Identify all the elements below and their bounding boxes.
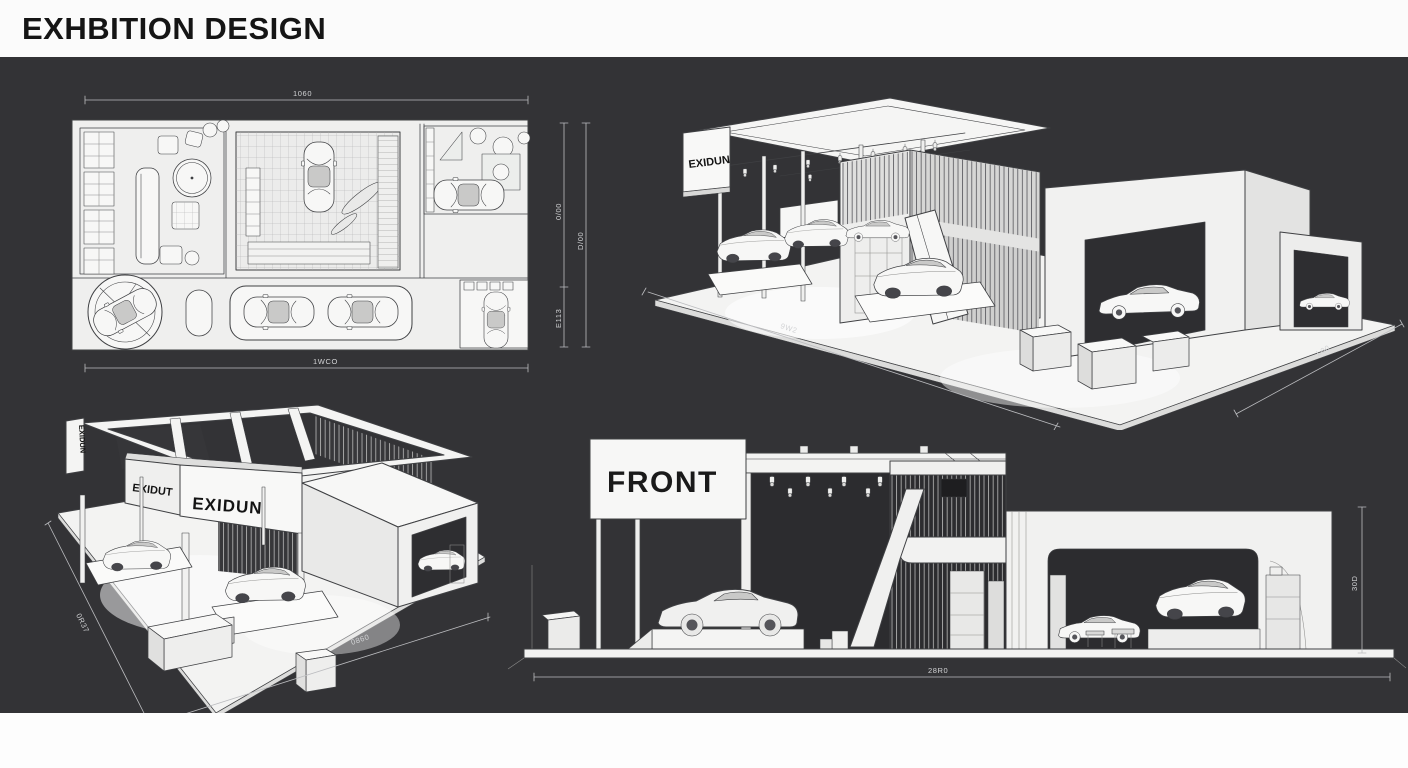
slide: EXHBITION DESIGN 1060 1WCO — [0, 0, 1408, 768]
iso-rear-side-sign: EXIDUN — [66, 418, 87, 474]
iso-rear-dim-left: 0R37 — [74, 612, 91, 634]
plan-dim-top: 1060 — [293, 89, 312, 98]
plan-dim-right-inner-bottom: E113 — [554, 309, 563, 328]
footer-band — [0, 713, 1408, 768]
plan-dim-bottom: 1WCO — [313, 357, 338, 366]
page-title: EXHBITION DESIGN — [22, 11, 326, 47]
header-bar: EXHBITION DESIGN — [0, 0, 1408, 57]
front-dim-right: 30D — [1350, 575, 1359, 591]
floor-plan-view: 1060 1WCO 0/00 E113 D/00 — [40, 80, 620, 392]
iso-rear-view: EXIDUN EXIDUT EXIDUN — [20, 395, 520, 725]
plan-dim-right-outer: D/00 — [576, 232, 585, 250]
front-dim-bottom: 28R0 — [928, 666, 948, 675]
front-elevation-view: FRONT — [500, 425, 1408, 713]
plan-dim-right-inner-top: 0/00 — [554, 203, 563, 220]
plan-display-area — [236, 132, 400, 270]
iso-overview-view: EXIDUN — [630, 78, 1408, 430]
front-left-edge — [532, 565, 580, 649]
iso-rear-side-sign-text: EXIDUN — [77, 425, 87, 454]
front-right-building — [1006, 511, 1332, 649]
plan-drawing — [72, 120, 530, 350]
front-floor — [508, 649, 1406, 669]
front-sign-text: FRONT — [607, 466, 718, 499]
